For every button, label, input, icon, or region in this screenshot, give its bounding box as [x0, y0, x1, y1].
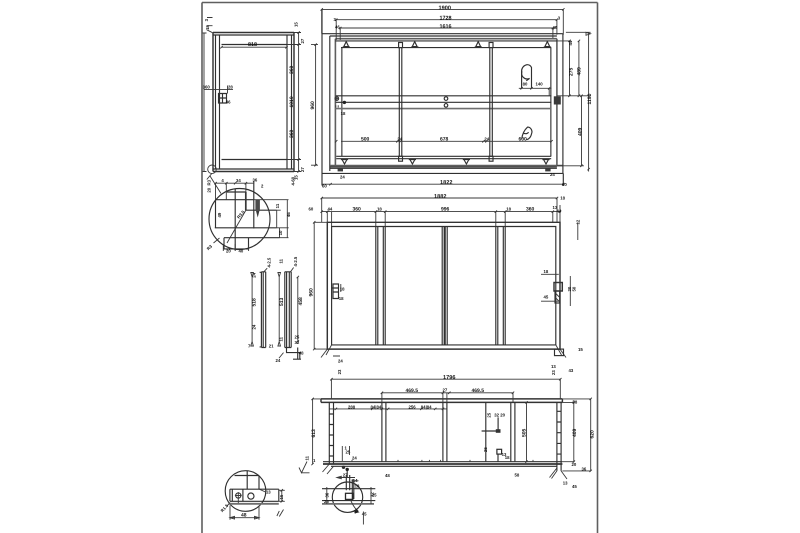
svg-text:25: 25 — [324, 499, 329, 504]
svg-text:409: 409 — [572, 428, 578, 437]
svg-text:469.5: 469.5 — [472, 388, 485, 394]
svg-text:996: 996 — [441, 207, 450, 213]
svg-text:10: 10 — [278, 230, 283, 235]
svg-text:18: 18 — [355, 484, 360, 489]
svg-text:360: 360 — [353, 207, 362, 213]
svg-text:34: 34 — [236, 178, 241, 183]
svg-text:60: 60 — [562, 182, 567, 187]
svg-text:27: 27 — [300, 38, 305, 43]
svg-text:48: 48 — [385, 473, 390, 478]
svg-text:15: 15 — [578, 347, 583, 352]
svg-text:4-2.5: 4-2.5 — [267, 257, 272, 267]
svg-text:1822: 1822 — [440, 180, 452, 186]
svg-text:28: 28 — [228, 85, 233, 90]
svg-text:46: 46 — [226, 99, 231, 104]
svg-text:1190: 1190 — [587, 93, 593, 104]
svg-text:25: 25 — [295, 335, 300, 340]
svg-text:20: 20 — [226, 248, 231, 253]
svg-text:360: 360 — [289, 65, 295, 74]
svg-text:18: 18 — [505, 455, 510, 460]
svg-text:84|84: 84|84 — [371, 404, 382, 409]
svg-text:613: 613 — [311, 429, 317, 438]
svg-text:1728: 1728 — [440, 16, 452, 22]
svg-text:25: 25 — [487, 412, 492, 417]
svg-text:288: 288 — [348, 404, 356, 409]
svg-text:469.5: 469.5 — [406, 388, 419, 394]
svg-text:275: 275 — [568, 67, 574, 76]
svg-text:40: 40 — [239, 248, 244, 253]
svg-text:18: 18 — [341, 111, 346, 116]
svg-text:458: 458 — [298, 297, 304, 306]
svg-text:18: 18 — [544, 269, 549, 274]
svg-text:24: 24 — [276, 358, 281, 363]
svg-text:45: 45 — [544, 295, 549, 300]
svg-text:11: 11 — [279, 258, 284, 263]
svg-text:513: 513 — [279, 297, 285, 306]
svg-text:48: 48 — [241, 512, 247, 518]
svg-text:44: 44 — [568, 40, 573, 45]
svg-text:500: 500 — [361, 136, 370, 142]
svg-text:140: 140 — [536, 82, 544, 87]
svg-text:24: 24 — [550, 172, 555, 177]
svg-text:24: 24 — [352, 455, 357, 460]
svg-text:18: 18 — [560, 196, 565, 201]
svg-text:1616: 1616 — [440, 24, 452, 30]
svg-text:18: 18 — [506, 207, 511, 212]
svg-text:505: 505 — [521, 428, 527, 437]
svg-text:80: 80 — [523, 82, 528, 87]
svg-text:58: 58 — [573, 399, 578, 404]
svg-text:46: 46 — [335, 25, 340, 30]
svg-text:1900: 1900 — [439, 5, 451, 11]
svg-text:58: 58 — [515, 472, 520, 477]
svg-text:27: 27 — [343, 473, 348, 478]
svg-text:360: 360 — [289, 129, 295, 138]
svg-text:20: 20 — [572, 462, 577, 467]
svg-text:518: 518 — [252, 298, 258, 307]
svg-text:24: 24 — [340, 175, 345, 180]
svg-text:620: 620 — [590, 430, 596, 439]
svg-text:18: 18 — [205, 25, 210, 30]
svg-text:4-2.5: 4-2.5 — [293, 256, 298, 266]
svg-text:678: 678 — [440, 136, 449, 142]
svg-text:27: 27 — [300, 167, 305, 172]
svg-text:24: 24 — [397, 136, 402, 141]
svg-text:489: 489 — [577, 67, 583, 76]
svg-text:45: 45 — [362, 512, 367, 517]
svg-text:27: 27 — [443, 387, 448, 392]
svg-text:960: 960 — [310, 101, 316, 110]
svg-text:15: 15 — [294, 22, 299, 27]
svg-text:4-60: 4-60 — [291, 176, 296, 185]
svg-text:32: 32 — [494, 413, 499, 418]
svg-text:24: 24 — [484, 136, 489, 141]
svg-text:36: 36 — [582, 467, 587, 472]
svg-text:25: 25 — [372, 493, 377, 498]
svg-text:44: 44 — [557, 208, 562, 213]
svg-text:60: 60 — [322, 184, 327, 189]
svg-text:23: 23 — [337, 369, 342, 374]
svg-text:20: 20 — [207, 187, 212, 192]
svg-text:11: 11 — [305, 455, 310, 460]
svg-text:24: 24 — [338, 359, 343, 364]
svg-text:44: 44 — [328, 207, 333, 212]
svg-text:13: 13 — [551, 364, 556, 369]
svg-text:18: 18 — [377, 207, 382, 212]
svg-text:818: 818 — [248, 42, 257, 48]
svg-text:21: 21 — [269, 344, 274, 349]
svg-text:36: 36 — [324, 492, 329, 497]
svg-text:36: 36 — [253, 178, 258, 183]
svg-text:1010: 1010 — [289, 96, 295, 107]
svg-text:23: 23 — [551, 370, 556, 375]
svg-text:1796: 1796 — [443, 375, 455, 381]
svg-text:46: 46 — [286, 212, 291, 217]
svg-text:24: 24 — [251, 272, 256, 277]
svg-text:20: 20 — [500, 413, 505, 418]
svg-text:45: 45 — [572, 484, 577, 489]
svg-text:960: 960 — [308, 288, 314, 297]
svg-text:32: 32 — [295, 340, 300, 345]
svg-text:256: 256 — [409, 404, 417, 409]
svg-text:11: 11 — [275, 203, 280, 208]
svg-text:18: 18 — [340, 286, 345, 291]
svg-text:48: 48 — [299, 351, 304, 356]
svg-text:360: 360 — [526, 207, 535, 213]
svg-text:24: 24 — [251, 324, 256, 329]
svg-text:25: 25 — [346, 450, 351, 455]
svg-text:1882: 1882 — [434, 194, 446, 200]
svg-text:18: 18 — [339, 296, 344, 301]
svg-text:R3: R3 — [207, 179, 212, 185]
svg-text:49: 49 — [217, 212, 222, 217]
svg-text:13: 13 — [266, 489, 271, 494]
svg-text:84|84: 84|84 — [421, 404, 432, 409]
svg-text:360: 360 — [203, 85, 211, 90]
svg-text:43: 43 — [569, 368, 574, 373]
svg-text:60: 60 — [309, 207, 314, 212]
svg-text:50: 50 — [572, 286, 577, 291]
svg-text:25: 25 — [483, 447, 488, 452]
svg-text:409: 409 — [577, 127, 583, 136]
svg-text:11: 11 — [279, 336, 284, 341]
svg-text:13: 13 — [563, 481, 568, 486]
svg-text:600: 600 — [519, 136, 528, 142]
